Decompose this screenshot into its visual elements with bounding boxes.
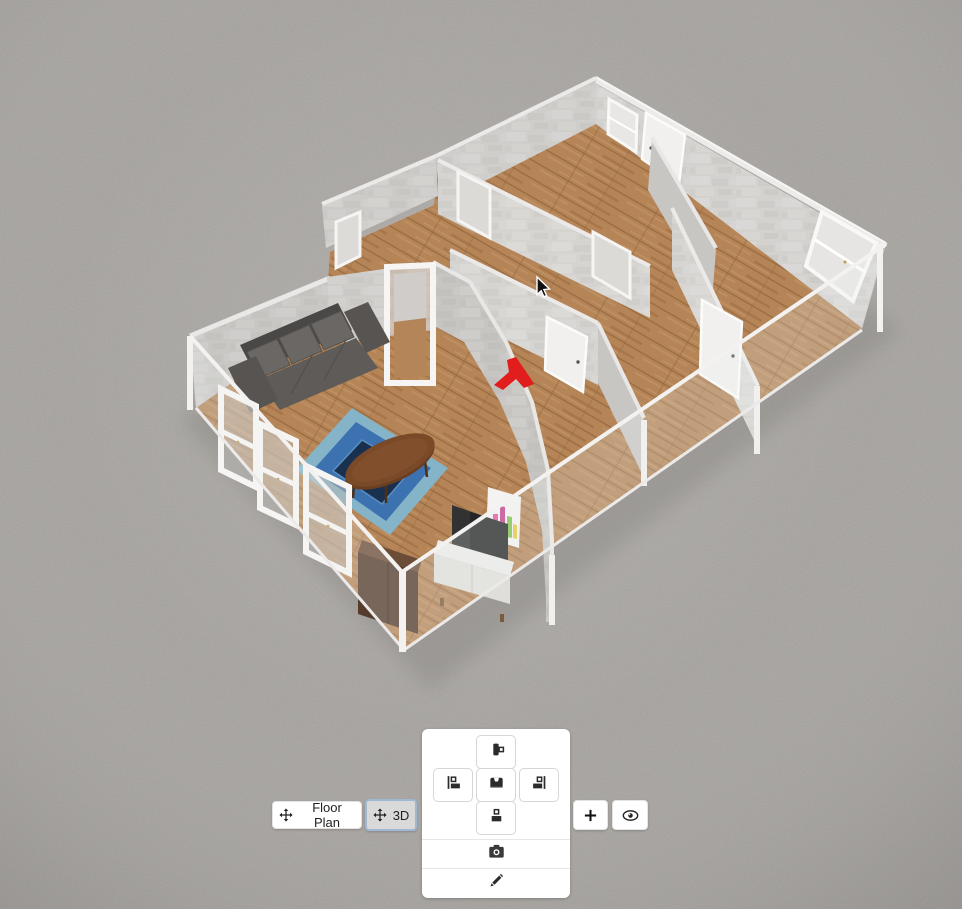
3d-view-button[interactable]: 3D xyxy=(365,799,417,831)
app-viewport: Floor Plan 3D xyxy=(0,0,962,909)
camera-icon xyxy=(488,844,505,864)
camera-button[interactable] xyxy=(422,840,570,868)
furniture-align-right-icon xyxy=(531,774,548,796)
floor-plan-view-button[interactable]: Floor Plan xyxy=(272,801,362,829)
furniture-align-bottom-icon xyxy=(488,807,505,829)
placement-panel xyxy=(422,729,570,898)
add-button[interactable] xyxy=(573,800,608,830)
pencil-icon xyxy=(488,873,504,894)
floor-plan-label: Floor Plan xyxy=(299,800,355,830)
draw-button[interactable] xyxy=(422,869,570,897)
align-top-button[interactable] xyxy=(476,735,516,769)
align-bottom-button[interactable] xyxy=(476,801,516,835)
move-icon xyxy=(279,808,293,822)
visibility-button[interactable] xyxy=(612,800,648,830)
center-button[interactable] xyxy=(476,768,516,802)
align-left-button[interactable] xyxy=(433,768,473,802)
eye-icon xyxy=(622,809,639,822)
plus-icon xyxy=(583,808,598,823)
furniture-align-top-icon xyxy=(488,741,505,763)
armchair-icon xyxy=(488,774,505,796)
align-right-button[interactable] xyxy=(519,768,559,802)
3d-label: 3D xyxy=(393,808,410,823)
doorway-frame[interactable] xyxy=(387,265,433,383)
move-icon xyxy=(373,808,387,822)
furniture-align-left-icon xyxy=(445,774,462,796)
